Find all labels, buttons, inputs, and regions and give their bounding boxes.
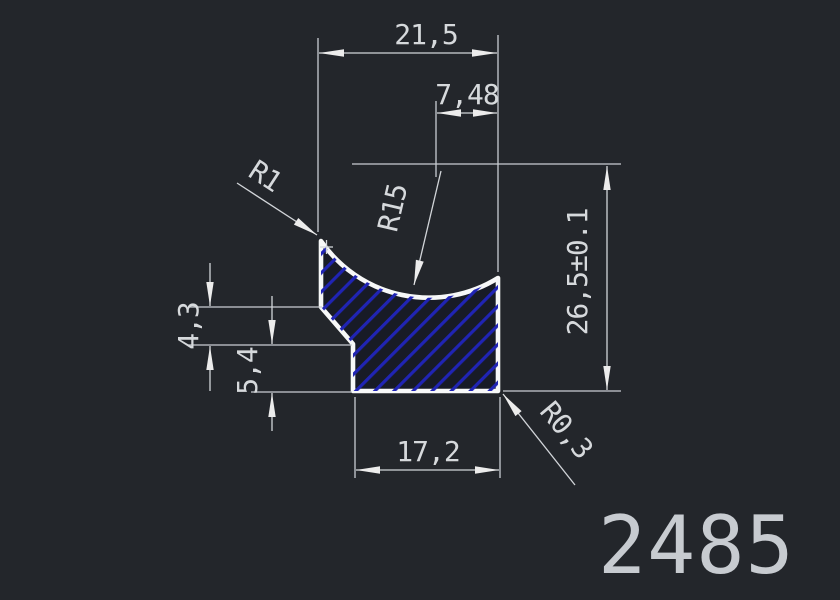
radius-value: R0,3 bbox=[533, 395, 599, 465]
profile-hatching bbox=[321, 241, 498, 391]
dimension-value: 26,5±0.1 bbox=[561, 209, 594, 336]
dimension-value: 7,48 bbox=[435, 78, 499, 111]
dimension-bottom-width: 17,2 bbox=[355, 397, 500, 478]
arrowhead-up bbox=[268, 393, 275, 417]
dimension-top-width: 21,5 bbox=[318, 18, 498, 272]
dimension-value: 17,2 bbox=[396, 435, 459, 468]
cad-drawing-viewport: 21,5 7,48 26,5±0.1 4,3 5,4 bbox=[0, 0, 840, 600]
leader-cove-radius: R15 bbox=[371, 171, 441, 285]
dimension-value: 4,3 bbox=[172, 302, 205, 350]
arrowhead-up bbox=[603, 166, 610, 190]
arrowhead-left bbox=[356, 466, 380, 473]
technical-drawing: 21,5 7,48 26,5±0.1 4,3 5,4 bbox=[0, 0, 840, 600]
arrowhead-down bbox=[603, 366, 610, 390]
arrowhead-right bbox=[472, 49, 497, 56]
arrowhead bbox=[414, 260, 424, 285]
dimension-value: 21,5 bbox=[394, 18, 457, 51]
arrowhead bbox=[503, 394, 522, 416]
arrowhead bbox=[294, 218, 317, 235]
part-number: 2485 bbox=[598, 499, 795, 592]
arrowhead-right bbox=[475, 466, 499, 473]
arrowhead-left bbox=[319, 49, 344, 56]
arrowhead-down bbox=[268, 320, 275, 344]
dimension-total-height: 26,5±0.1 bbox=[503, 166, 621, 391]
dimension-value: 5,4 bbox=[231, 347, 264, 395]
arrowhead-up bbox=[206, 346, 213, 370]
arrowhead-down bbox=[206, 282, 213, 306]
dimension-arc-center-offset: 7,48 bbox=[435, 78, 499, 177]
leader-fillet-radius: R0,3 bbox=[503, 394, 599, 485]
radius-value: R15 bbox=[371, 181, 414, 235]
profile-cross-section bbox=[321, 241, 498, 391]
